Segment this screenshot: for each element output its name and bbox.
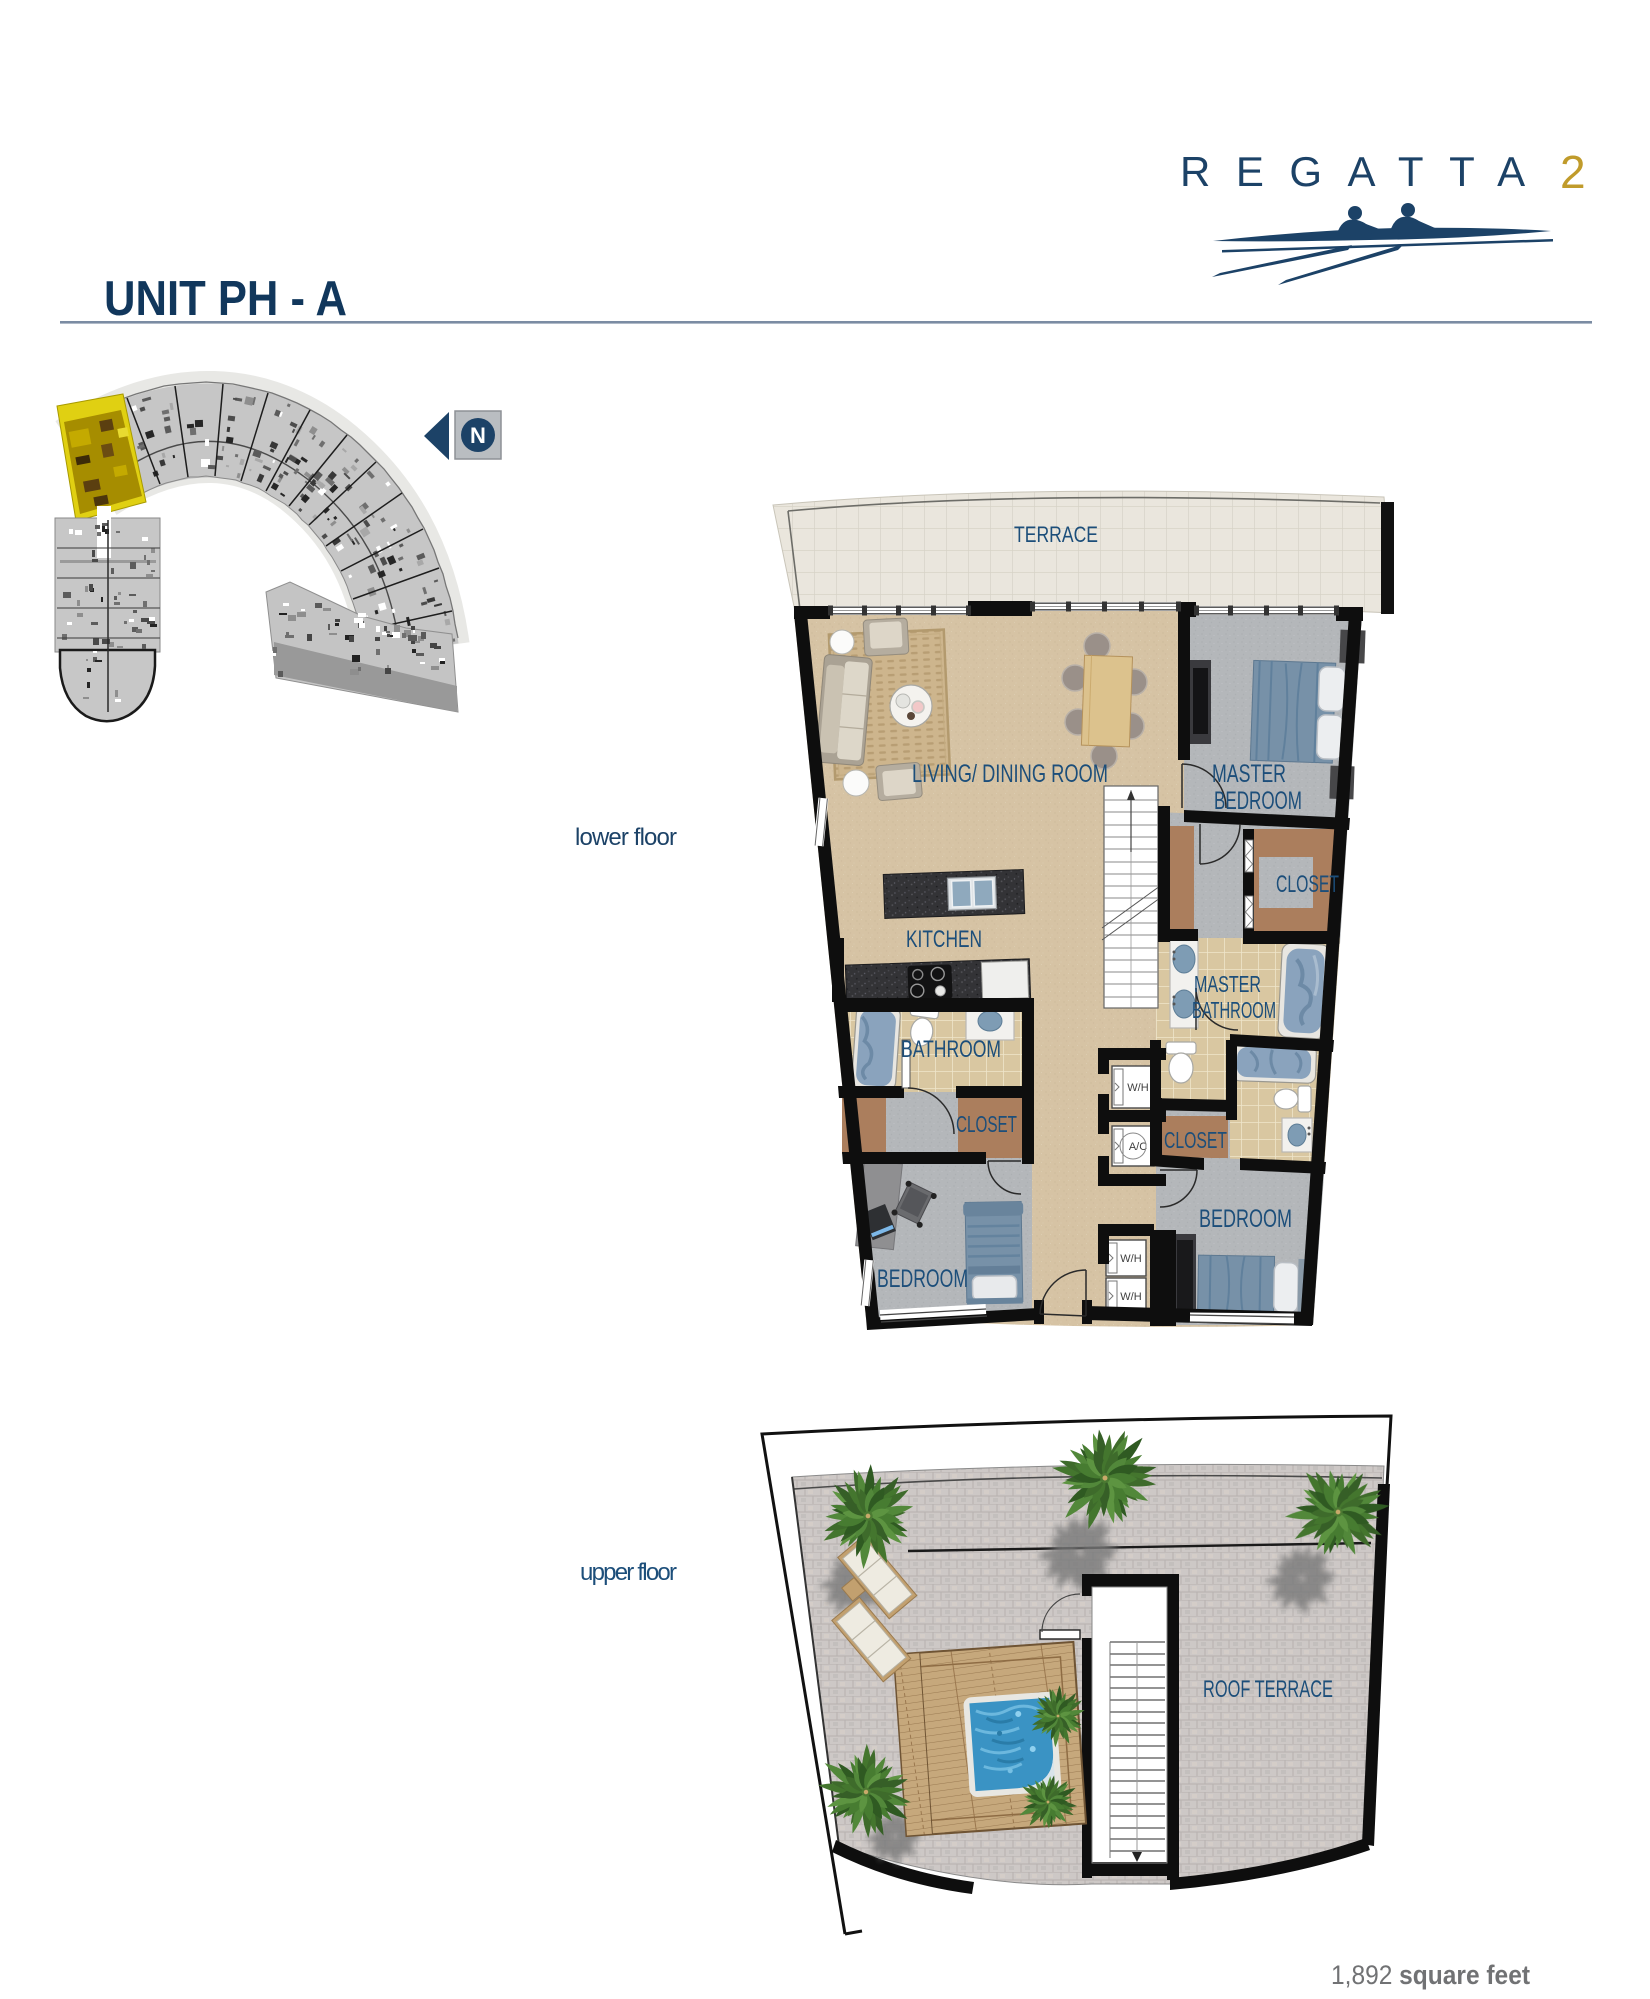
svg-text:LIVING/ DINING ROOM: LIVING/ DINING ROOM [912, 760, 1108, 788]
svg-text:CLOSET: CLOSET [1164, 1127, 1227, 1153]
svg-text:CLOSET: CLOSET [956, 1111, 1017, 1137]
svg-text:MASTER: MASTER [1212, 760, 1286, 788]
svg-text:W/H: W/H [1120, 1291, 1141, 1303]
svg-text:W/H: W/H [1127, 1082, 1148, 1094]
svg-text:2: 2 [1560, 146, 1586, 198]
svg-text:KITCHEN: KITCHEN [906, 926, 982, 953]
svg-text:N: N [470, 423, 486, 448]
svg-text:lower floor: lower floor [575, 824, 677, 851]
svg-text:ROOF TERRACE: ROOF TERRACE [1203, 1676, 1333, 1703]
svg-text:REGATTA: REGATTA [1180, 148, 1551, 195]
svg-text:BEDROOM: BEDROOM [877, 1265, 968, 1293]
svg-text:CLOSET: CLOSET [1276, 871, 1339, 898]
svg-text:BATHROOM: BATHROOM [901, 1036, 1001, 1063]
svg-text:BEDROOM: BEDROOM [1214, 787, 1302, 815]
svg-text:upper floor: upper floor [580, 1559, 677, 1586]
svg-text:W/H: W/H [1120, 1253, 1141, 1265]
svg-text:MASTER: MASTER [1194, 971, 1261, 997]
svg-text:BEDROOM: BEDROOM [1199, 1205, 1292, 1233]
svg-text:BATHROOM: BATHROOM [1192, 997, 1276, 1023]
svg-text:TERRACE: TERRACE [1014, 522, 1098, 547]
svg-text:1,892 square feet: 1,892 square feet [1331, 1960, 1530, 1990]
svg-text:UNIT PH - A: UNIT PH - A [104, 272, 347, 326]
